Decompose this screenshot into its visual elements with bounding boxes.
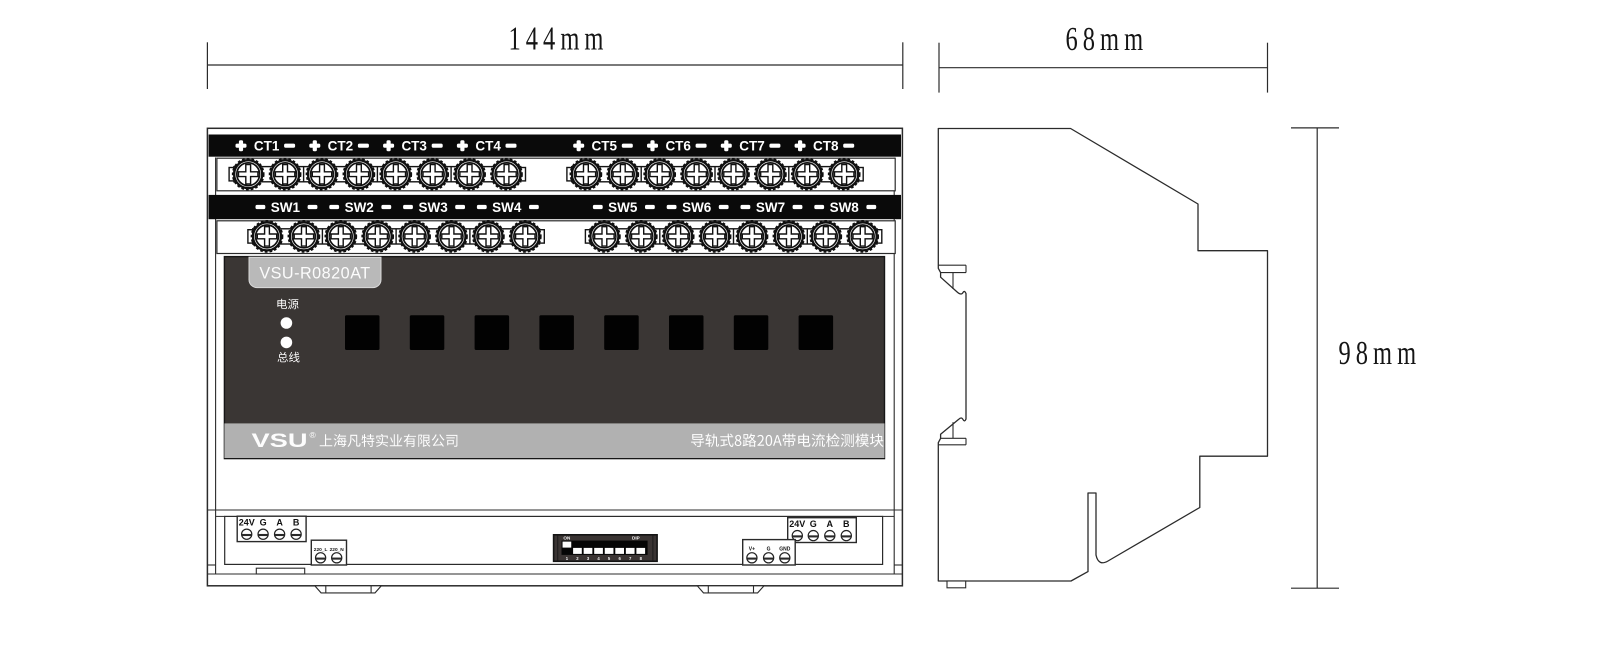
svg-text:G: G bbox=[260, 518, 267, 528]
svg-text:CT5: CT5 bbox=[592, 138, 618, 153]
svg-text:220_N: 220_N bbox=[330, 547, 345, 553]
svg-text:SW7: SW7 bbox=[756, 200, 785, 215]
svg-text:SW8: SW8 bbox=[830, 200, 860, 215]
svg-text:V+: V+ bbox=[749, 547, 755, 553]
svg-text:®: ® bbox=[310, 430, 317, 440]
svg-text:G: G bbox=[810, 519, 817, 529]
svg-text:SW4: SW4 bbox=[492, 200, 522, 215]
svg-text:SW2: SW2 bbox=[345, 200, 374, 215]
svg-text:GND: GND bbox=[779, 547, 791, 553]
svg-text:SW6: SW6 bbox=[682, 200, 712, 215]
svg-text:68mm: 68mm bbox=[1066, 21, 1149, 58]
svg-text:ON: ON bbox=[563, 536, 571, 541]
svg-text:B: B bbox=[843, 519, 850, 529]
svg-text:A: A bbox=[827, 519, 834, 529]
svg-text:B: B bbox=[293, 518, 300, 528]
svg-text:SW3: SW3 bbox=[418, 200, 448, 215]
svg-text:VSU-R0820AT: VSU-R0820AT bbox=[259, 264, 370, 282]
svg-text:CT4: CT4 bbox=[475, 138, 501, 153]
svg-text:24V: 24V bbox=[239, 518, 255, 528]
svg-text:CT7: CT7 bbox=[739, 138, 765, 153]
svg-text:CT6: CT6 bbox=[665, 138, 691, 153]
svg-text:SW5: SW5 bbox=[608, 200, 638, 215]
svg-text:CT8: CT8 bbox=[813, 138, 839, 153]
svg-text:CT1: CT1 bbox=[254, 138, 280, 153]
svg-text:G: G bbox=[767, 547, 771, 553]
svg-text:VSU: VSU bbox=[252, 431, 308, 452]
svg-text:A: A bbox=[276, 518, 283, 528]
svg-text:DIP: DIP bbox=[632, 536, 640, 541]
svg-text:CT2: CT2 bbox=[328, 138, 354, 153]
svg-text:SW1: SW1 bbox=[271, 200, 301, 215]
svg-text:144mm: 144mm bbox=[509, 21, 609, 58]
svg-text:24V: 24V bbox=[789, 519, 805, 529]
svg-text:220_L: 220_L bbox=[314, 547, 328, 553]
svg-text:98mm: 98mm bbox=[1339, 335, 1422, 372]
svg-text:CT3: CT3 bbox=[401, 138, 427, 153]
